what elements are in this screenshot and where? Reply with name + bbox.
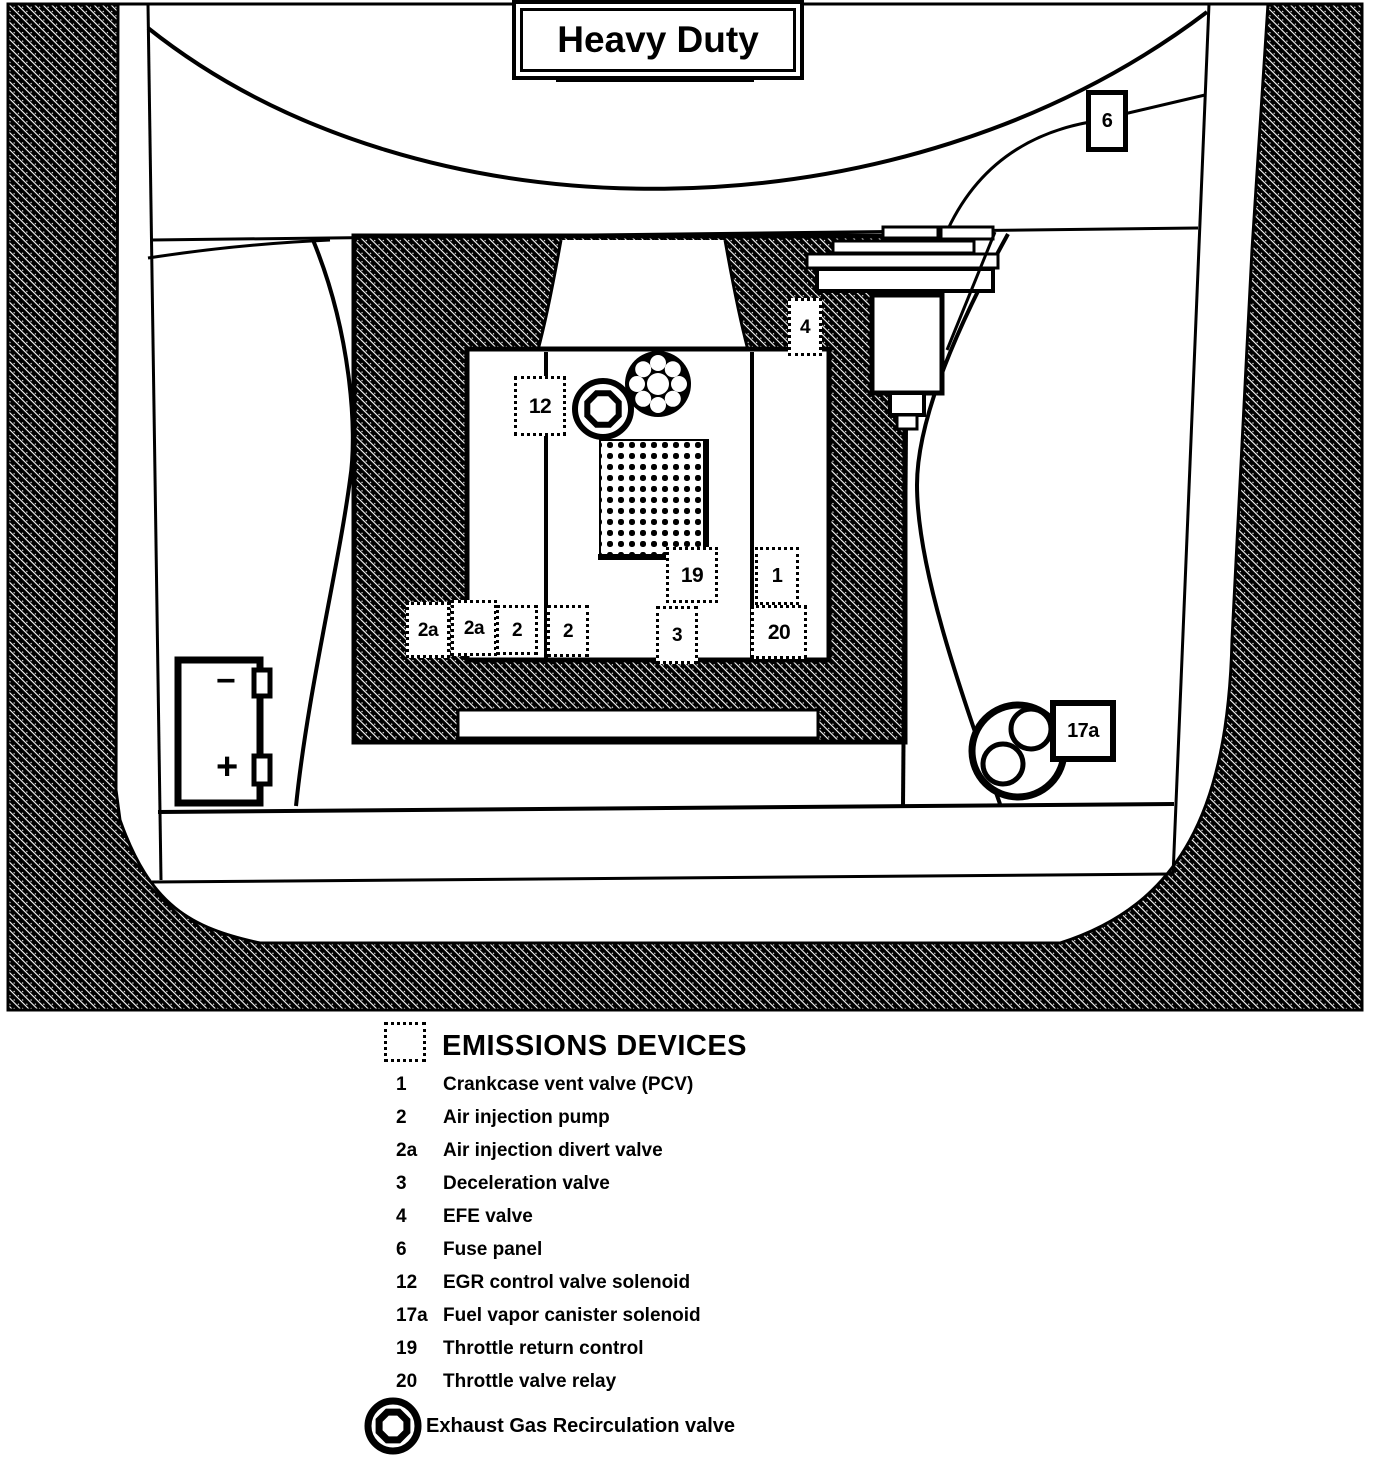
callout-air-divert-right: 2a: [451, 600, 497, 656]
legend-item-label: Fuel vapor canister solenoid: [443, 1305, 1036, 1327]
legend-item-egr-valve: Exhaust Gas Recirculation valve: [362, 1396, 1062, 1456]
cowl-left-droop: [148, 240, 330, 258]
callout-vapor-canister: 17a: [1050, 700, 1116, 762]
battery-negative-sign: −: [216, 664, 236, 698]
efe-valve-body: [872, 295, 942, 393]
legend-item-label: Throttle valve relay: [443, 1371, 1036, 1393]
battery-terminal-top: [254, 670, 270, 696]
legend-item-number: 19: [396, 1338, 443, 1360]
legend-item-throttle-relay: 20 Throttle valve relay: [396, 1369, 1036, 1395]
egr-valve-icon: [575, 381, 631, 437]
legend-item-air-divert: 2a Air injection divert valve: [396, 1138, 1036, 1164]
callout-throttle-relay: 20: [751, 605, 807, 659]
callout-throttle-return: 19: [666, 547, 718, 603]
legend-title: EMISSIONS DEVICES: [442, 1030, 747, 1063]
emissions-device-key-icon: [384, 1022, 426, 1062]
radiator-bar: [458, 710, 818, 738]
callout-fuse-panel: 6: [1086, 90, 1128, 152]
legend-item-number: 17a: [396, 1305, 443, 1327]
legend-item-number: 2: [396, 1107, 443, 1129]
legend-item-label: Deceleration valve: [443, 1173, 1036, 1195]
legend-item-air-pump: 2 Air injection pump: [396, 1105, 1036, 1131]
distributor-cap-icon: [625, 351, 691, 417]
callout-egr-solenoid: 12: [514, 376, 566, 436]
legend-item-label: Crankcase vent valve (PCV): [443, 1074, 1036, 1096]
battery-positive-sign: +: [216, 748, 238, 786]
legend-item-number: 1: [396, 1074, 443, 1096]
battery-terminal-bottom: [254, 756, 270, 784]
page-title: Heavy Duty: [520, 8, 796, 72]
callout-decel-valve: 3: [656, 606, 698, 664]
legend-item-label: Throttle return control: [443, 1338, 1036, 1360]
callout-air-pump-right: 2: [547, 605, 589, 657]
legend-item-number: 6: [396, 1239, 443, 1261]
legend-item-vapor-canister: 17a Fuel vapor canister solenoid: [396, 1303, 1036, 1329]
legend-item-number: 4: [396, 1206, 443, 1228]
legend-item-label: Air injection divert valve: [443, 1140, 1036, 1162]
legend-item-egr-solenoid: 12 EGR control valve solenoid: [396, 1270, 1036, 1296]
legend-item-throttle-return: 19 Throttle return control: [396, 1336, 1036, 1362]
engine-dome: [538, 240, 748, 350]
right-frame-line: [1173, 4, 1209, 876]
egr-valve-key-icon: [362, 1397, 424, 1455]
legend-item-number: 20: [396, 1371, 443, 1393]
front-panel-line: [152, 874, 1172, 882]
legend-item-number: 3: [396, 1173, 443, 1195]
callout-efe-valve: 4: [788, 298, 822, 356]
legend-item-efe-valve: 4 EFE valve: [396, 1204, 1036, 1230]
legend-item-fuse-panel: 6 Fuse panel: [396, 1237, 1036, 1263]
engine-compartment-diagram-page: Heavy Duty 6 4 12 19 1 20 2a 2a 2 2 3 17…: [0, 0, 1392, 1480]
legend-item-label: EFE valve: [443, 1206, 1036, 1228]
legend-item-decel-valve: 3 Deceleration valve: [396, 1171, 1036, 1197]
air-filter-grid: [598, 440, 708, 560]
bay-floor-line: [158, 804, 1174, 812]
left-frame-line: [148, 4, 161, 880]
left-wheel-arch: [296, 240, 353, 806]
callout-pcv: 1: [755, 547, 799, 605]
legend-item-label: Air injection pump: [443, 1107, 1036, 1129]
legend-item-number: 12: [396, 1272, 443, 1294]
legend-item-label: Fuse panel: [443, 1239, 1036, 1261]
legend-item-number: 2a: [396, 1140, 443, 1162]
legend-item-label: EGR control valve solenoid: [443, 1272, 1036, 1294]
cowl-vent-curve: [948, 95, 1205, 229]
callout-air-pump-left: 2: [496, 605, 538, 655]
legend-item-label: Exhaust Gas Recirculation valve: [426, 1415, 735, 1438]
callout-air-divert-left: 2a: [406, 602, 450, 658]
legend-item-pcv: 1 Crankcase vent valve (PCV): [396, 1072, 1036, 1098]
engine-bay-drawing: [0, 0, 1392, 1012]
title-plate: Heavy Duty: [512, 0, 804, 80]
